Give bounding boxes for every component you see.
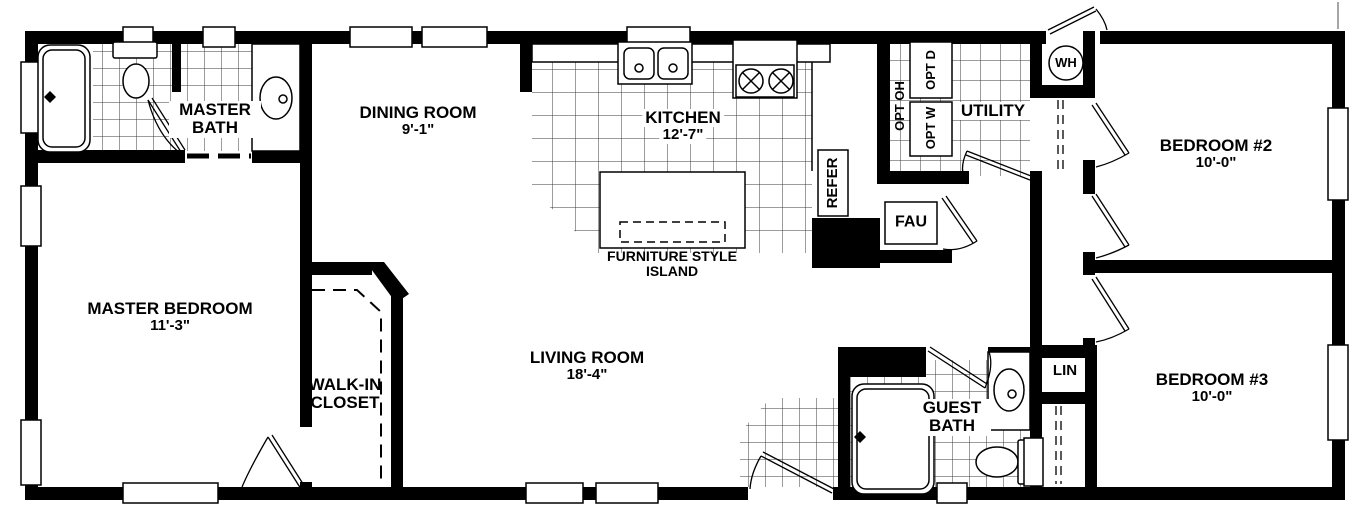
- bedroom3-label: BEDROOM #3 10'-0": [1156, 371, 1268, 406]
- opt-overhead-label: OPT OH: [893, 81, 907, 131]
- window: [526, 483, 583, 503]
- guest-bath-label: GUEST BATH: [913, 399, 991, 436]
- drain-icon: [669, 64, 677, 72]
- window: [1328, 345, 1348, 440]
- drain-icon: [1008, 390, 1016, 398]
- drain-icon: [279, 95, 287, 103]
- bedroom2-label: BEDROOM #2 10'-0": [1160, 137, 1272, 172]
- furnace-label: FAU: [895, 213, 927, 230]
- opt-dryer-label: OPT D: [924, 50, 938, 90]
- bedroom2-door: [1092, 194, 1129, 258]
- window: [21, 186, 41, 246]
- window: [937, 483, 967, 503]
- linen-label: LIN: [1053, 363, 1077, 379]
- window: [596, 483, 658, 503]
- fau-door: [942, 196, 977, 250]
- window: [123, 483, 218, 503]
- window: [21, 420, 41, 485]
- bedroom3-door: [1092, 277, 1129, 342]
- window: [1328, 108, 1348, 200]
- drain-icon: [635, 64, 643, 72]
- water-heater-label: WH: [1055, 56, 1077, 70]
- entry-floor: [740, 398, 838, 487]
- dining-room-label: DINING ROOM 9'-1": [359, 104, 476, 139]
- refrigerator-label: REFER: [825, 158, 841, 209]
- bedroom2-closet-door: [1092, 103, 1129, 167]
- toilet-icon: [976, 447, 1018, 477]
- island-label: FURNITURE STYLE ISLAND: [592, 249, 752, 280]
- kitchen-label: KITCHEN 12'-7": [642, 109, 724, 144]
- exterior-door-utility: [1048, 7, 1107, 34]
- walk-in-closet-label: WALK-IN CLOSET: [297, 376, 393, 413]
- utility-label: UTILITY: [958, 102, 1028, 120]
- window: [350, 27, 412, 47]
- opt-washer-label: OPT W: [924, 107, 938, 150]
- master-bedroom-label: MASTER BEDROOM 11'-3": [87, 300, 252, 335]
- living-room-label: LIVING ROOM 18'-4": [530, 349, 644, 384]
- window: [422, 27, 487, 47]
- master-bath-label: MASTER BATH: [169, 101, 261, 138]
- sink-icon: [994, 369, 1024, 411]
- toilet-icon: [123, 64, 149, 98]
- island-dashed-inset: [620, 222, 725, 242]
- master-bedroom-door: [242, 435, 305, 489]
- floorplan: MASTER BEDROOM 11'-3" MASTER BATH WALK-I…: [0, 0, 1360, 520]
- window: [203, 27, 235, 47]
- toilet-tank-icon: [113, 42, 157, 58]
- closet-door-panel: [1024, 438, 1043, 486]
